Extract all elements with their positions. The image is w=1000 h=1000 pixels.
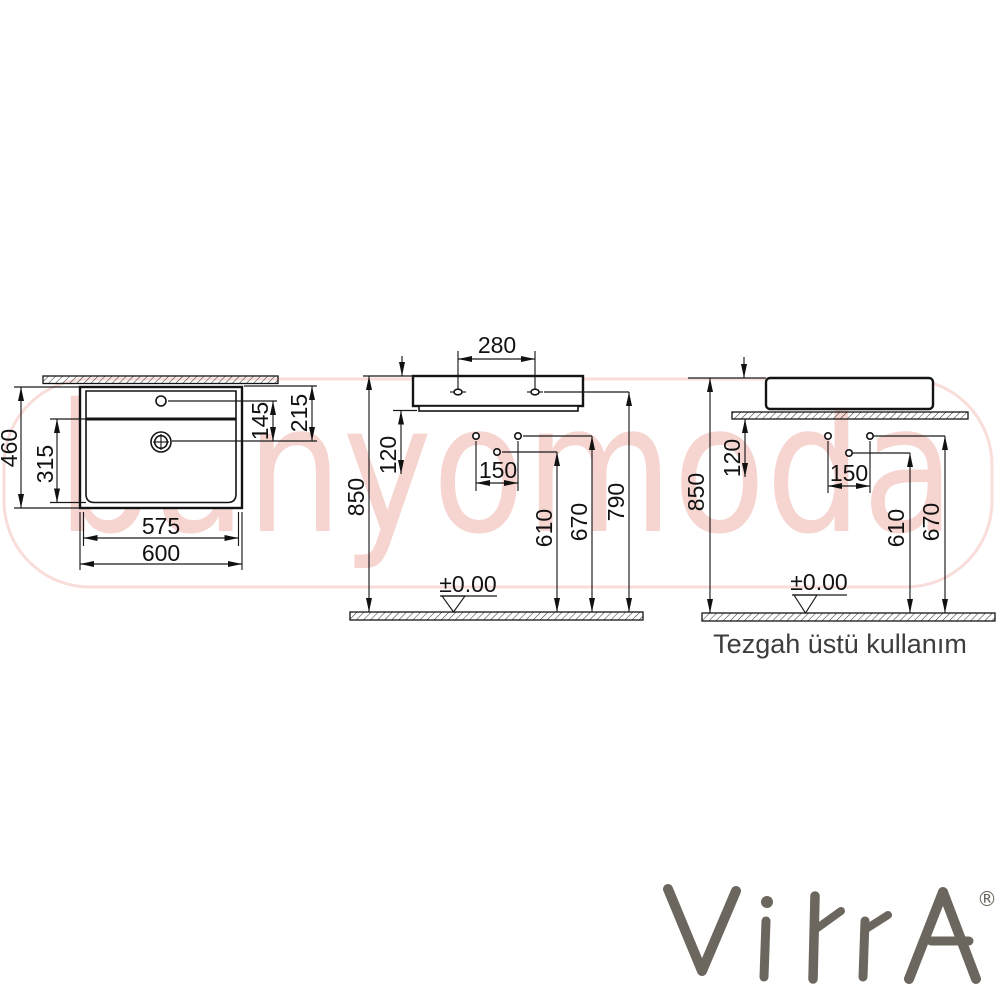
logo-letter-a (909, 892, 976, 979)
floor-level-label: ±0.00 (439, 571, 496, 597)
dim-tap-to-drain: 145 (247, 402, 273, 440)
logo-letter-t-stem (813, 896, 815, 979)
logo-letter-v (668, 889, 736, 971)
dim-fixing-holes-height: 670 (918, 503, 944, 541)
datum-triangle (442, 596, 465, 612)
basin-bottom-lip (419, 406, 578, 411)
countertop-hatch-strip (732, 412, 968, 419)
floor-level-label: ±0.00 (790, 569, 847, 595)
floor-level-datum-side: ±0.00 (790, 569, 847, 613)
drain-outlet-hole (846, 450, 852, 456)
fixing-hole-right (515, 433, 521, 439)
registered-trademark-icon: ® (977, 887, 997, 911)
logo-letter-i-dot (761, 896, 773, 908)
dim-basin-depth: 315 (32, 445, 58, 483)
washbasin-technical-drawing: banyomoda (0, 0, 1000, 1000)
dim-under-rim: 120 (375, 436, 401, 474)
dim-inner-width: 575 (142, 513, 180, 539)
dim-tap-hole-spacing: 280 (478, 332, 516, 358)
basin-front-profile (413, 376, 583, 406)
dim-rim-height: 850 (343, 478, 369, 516)
dim-fixing-hole-spacing: 150 (479, 457, 517, 483)
floor-hatch-strip (702, 613, 995, 621)
vitra-logo: ® (668, 887, 997, 979)
logo-letter-t-branch (816, 911, 841, 929)
logo-letter-i-stem (764, 921, 766, 977)
floor-level-datum-front: ±0.00 (439, 571, 497, 612)
dim-drain-line-height: 610 (531, 509, 557, 547)
dim-drain-line-height: 610 (883, 509, 909, 547)
fixing-hole-left (473, 433, 479, 439)
dim-rim-to-drain: 215 (286, 394, 312, 432)
tap-hole-mark-right (531, 389, 539, 395)
fixing-hole-right (867, 433, 873, 439)
dim-under-counter: 120 (719, 439, 745, 477)
tap-hole-mark-left (454, 389, 462, 395)
dim-overall-width: 600 (142, 540, 180, 566)
dim-fixing-hole-spacing: 150 (830, 460, 868, 486)
floor-hatch-strip (350, 612, 643, 620)
dim-tap-line-height: 790 (603, 483, 629, 521)
tap-hole (156, 396, 166, 406)
dim-overall-depth: 460 (0, 429, 22, 467)
dim-rim-height: 850 (683, 473, 709, 511)
datum-triangle (794, 595, 817, 613)
technical-drawing-page: banyomoda (0, 0, 1000, 1000)
wall-hatch-strip (43, 376, 278, 384)
dim-fixing-holes-height: 670 (566, 503, 592, 541)
fixing-hole-left (825, 433, 831, 439)
basin-side-profile (766, 378, 933, 409)
usage-caption: Tezgah üstü kullanım (713, 629, 967, 659)
drain-outlet-hole (494, 449, 500, 455)
